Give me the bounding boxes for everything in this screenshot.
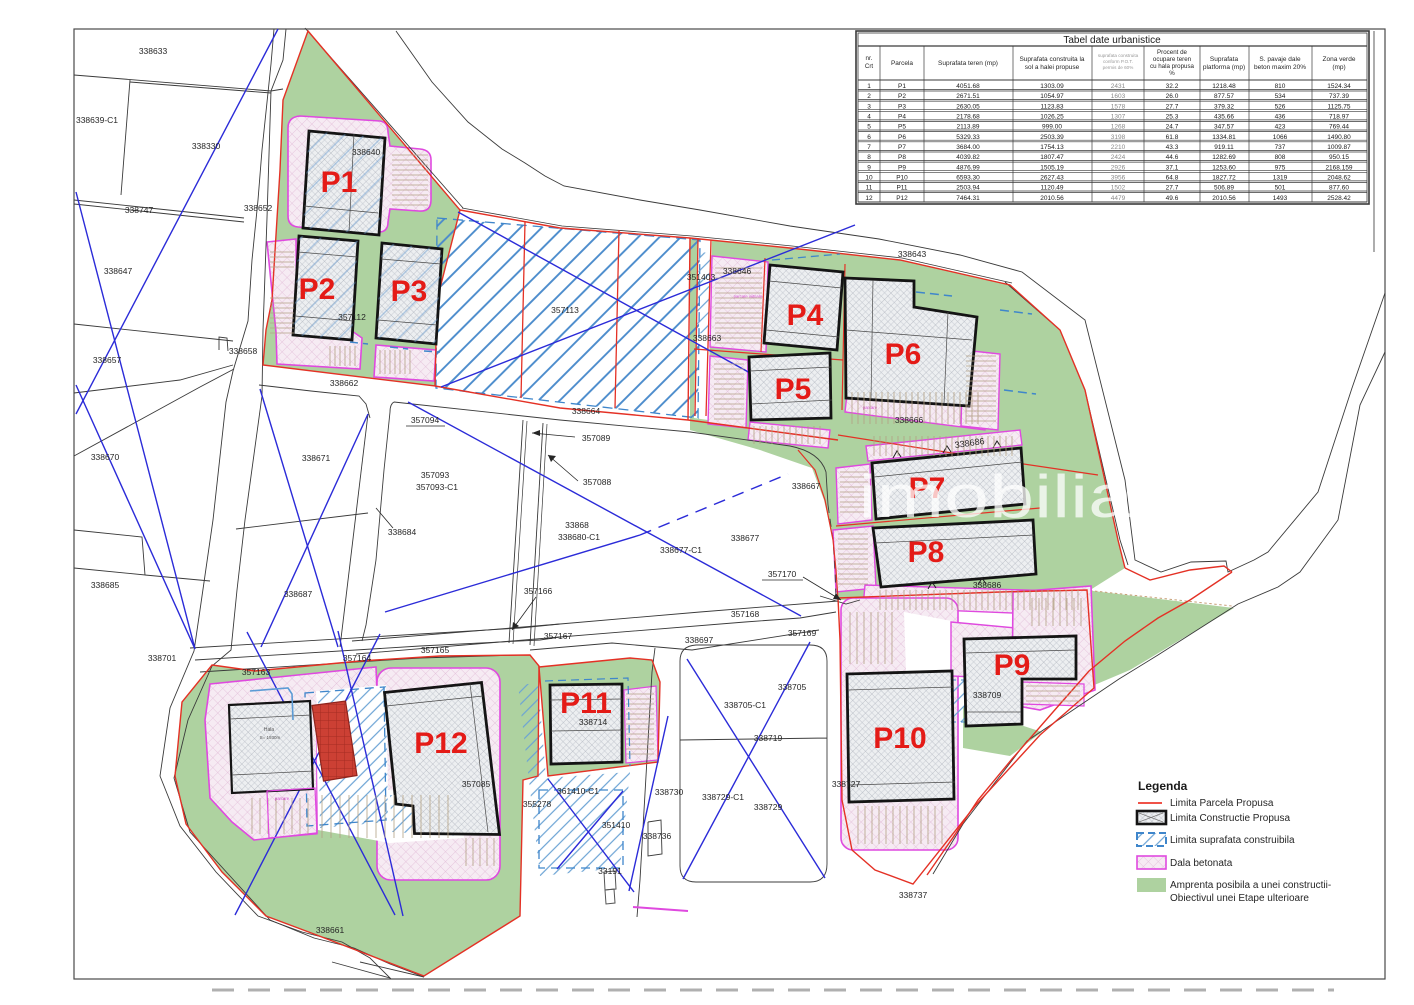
svg-text:338709: 338709 bbox=[973, 690, 1002, 700]
svg-text:338671: 338671 bbox=[302, 453, 331, 463]
svg-text:423: 423 bbox=[1275, 124, 1286, 131]
svg-text:P7: P7 bbox=[898, 144, 906, 151]
svg-text:338686: 338686 bbox=[973, 580, 1002, 590]
svg-text:43.3: 43.3 bbox=[1166, 144, 1179, 151]
svg-text:Procent de: Procent de bbox=[1157, 49, 1187, 56]
svg-text:338633: 338633 bbox=[139, 46, 168, 56]
svg-text:877.60: 877.60 bbox=[1329, 185, 1349, 192]
svg-text:4: 4 bbox=[867, 113, 871, 120]
svg-text:338662: 338662 bbox=[330, 378, 359, 388]
svg-text:P4: P4 bbox=[787, 299, 824, 332]
svg-text:ocupare teren: ocupare teren bbox=[1153, 56, 1192, 63]
svg-text:338730: 338730 bbox=[655, 787, 684, 797]
svg-text:1603: 1603 bbox=[1111, 93, 1126, 100]
svg-text:Limita Constructie Propusa: Limita Constructie Propusa bbox=[1170, 813, 1290, 824]
svg-text:P5: P5 bbox=[898, 124, 906, 131]
svg-text:347.57: 347.57 bbox=[1214, 124, 1234, 131]
svg-text:338647: 338647 bbox=[104, 266, 133, 276]
svg-text:Zona verde: Zona verde bbox=[1323, 56, 1356, 63]
svg-text:4051.68: 4051.68 bbox=[956, 83, 980, 90]
svg-text:338729-C1: 338729-C1 bbox=[702, 792, 744, 802]
svg-text:1578: 1578 bbox=[1111, 103, 1126, 110]
svg-text:1334.81: 1334.81 bbox=[1212, 134, 1236, 141]
svg-text:2113.89: 2113.89 bbox=[956, 124, 979, 131]
svg-text:nr.: nr. bbox=[866, 55, 873, 62]
svg-text:27.7: 27.7 bbox=[1166, 185, 1179, 192]
svg-text:357168: 357168 bbox=[731, 609, 760, 619]
svg-text:P12: P12 bbox=[414, 727, 467, 760]
svg-text:2010.56: 2010.56 bbox=[1040, 195, 1064, 202]
svg-text:44.6: 44.6 bbox=[1166, 154, 1179, 161]
svg-text:61.8: 61.8 bbox=[1166, 134, 1179, 141]
svg-text:338661: 338661 bbox=[316, 925, 345, 935]
svg-text:Limita suprafata construibila: Limita suprafata construibila bbox=[1170, 835, 1295, 846]
svg-text:338677-C1: 338677-C1 bbox=[660, 545, 702, 555]
svg-text:P2: P2 bbox=[898, 93, 906, 100]
svg-text:999.00: 999.00 bbox=[1042, 124, 1062, 131]
svg-text:2528.42: 2528.42 bbox=[1327, 195, 1351, 202]
svg-text:P10: P10 bbox=[896, 174, 908, 181]
svg-text:26.0: 26.0 bbox=[1166, 93, 1179, 100]
svg-text:beton maxim 20%: beton maxim 20% bbox=[1254, 64, 1306, 71]
svg-text:379.32: 379.32 bbox=[1214, 103, 1234, 110]
svg-text:2503.39: 2503.39 bbox=[1040, 134, 1064, 141]
svg-text:3684.00: 3684.00 bbox=[956, 144, 980, 151]
svg-text:cu hala propusa: cu hala propusa bbox=[1150, 63, 1195, 70]
svg-text:436: 436 bbox=[1275, 113, 1286, 120]
svg-text:718.97: 718.97 bbox=[1329, 113, 1349, 120]
svg-text:1493: 1493 bbox=[1273, 195, 1288, 202]
svg-text:808: 808 bbox=[1275, 154, 1286, 161]
svg-text:Hala: Hala bbox=[264, 727, 275, 733]
svg-text:suprafata construita: suprafata construita bbox=[1098, 53, 1139, 58]
svg-text:1827.72: 1827.72 bbox=[1212, 174, 1236, 181]
svg-text:357163: 357163 bbox=[242, 667, 271, 677]
svg-text:1268: 1268 bbox=[1111, 124, 1126, 131]
svg-text:2178.68: 2178.68 bbox=[956, 113, 980, 120]
svg-text:2431: 2431 bbox=[1111, 83, 1126, 90]
svg-text:P9: P9 bbox=[898, 164, 906, 171]
svg-text:338643: 338643 bbox=[898, 249, 927, 259]
svg-text:534: 534 bbox=[1275, 93, 1286, 100]
svg-text:1253.60: 1253.60 bbox=[1212, 164, 1236, 171]
svg-text:338663: 338663 bbox=[693, 333, 722, 343]
svg-text:357089: 357089 bbox=[582, 433, 611, 443]
svg-text:975: 975 bbox=[1275, 164, 1286, 171]
svg-text:Amprenta posibila a unei const: Amprenta posibila a unei constructii- bbox=[1170, 880, 1331, 891]
svg-text:5: 5 bbox=[867, 124, 871, 131]
svg-text:338685: 338685 bbox=[91, 580, 120, 590]
svg-text:P6: P6 bbox=[885, 338, 922, 371]
svg-text:1807.47: 1807.47 bbox=[1040, 154, 1064, 161]
svg-text:64.8: 64.8 bbox=[1166, 174, 1179, 181]
svg-text:338747: 338747 bbox=[125, 205, 154, 215]
svg-text:Dala betonata: Dala betonata bbox=[1170, 858, 1233, 869]
svg-text:435.66: 435.66 bbox=[1214, 113, 1234, 120]
svg-text:P1: P1 bbox=[898, 83, 906, 90]
svg-text:Limita Parcela Propusa: Limita Parcela Propusa bbox=[1170, 798, 1274, 809]
svg-text:P1: P1 bbox=[321, 166, 358, 199]
svg-text:1: 1 bbox=[867, 83, 871, 90]
svg-text:338719: 338719 bbox=[754, 733, 783, 743]
svg-text:2210: 2210 bbox=[1111, 144, 1126, 151]
svg-text:4479: 4479 bbox=[1111, 195, 1126, 202]
svg-text:737: 737 bbox=[1275, 144, 1286, 151]
svg-text:338684: 338684 bbox=[388, 527, 417, 537]
svg-text:357094: 357094 bbox=[411, 415, 440, 425]
svg-text:1319: 1319 bbox=[1273, 174, 1288, 181]
svg-text:338701: 338701 bbox=[148, 653, 177, 663]
svg-text:5329.33: 5329.33 bbox=[956, 134, 980, 141]
svg-text:338670: 338670 bbox=[91, 452, 120, 462]
svg-text:877.57: 877.57 bbox=[1214, 93, 1234, 100]
svg-text:338736: 338736 bbox=[643, 831, 672, 841]
svg-text:357169: 357169 bbox=[788, 628, 817, 638]
svg-text:1490.80: 1490.80 bbox=[1327, 134, 1351, 141]
svg-text:imobilia: imobilia bbox=[859, 463, 1134, 530]
svg-text:9: 9 bbox=[867, 164, 871, 171]
svg-text:permis de 60%: permis de 60% bbox=[1103, 65, 1134, 70]
svg-text:Suprafata teren (mp): Suprafata teren (mp) bbox=[938, 60, 998, 67]
svg-text:8: 8 bbox=[867, 154, 871, 161]
svg-text:7: 7 bbox=[867, 144, 871, 151]
svg-text:338666: 338666 bbox=[895, 415, 924, 425]
svg-text:1218.48: 1218.48 bbox=[1212, 83, 1236, 90]
svg-text:338727: 338727 bbox=[832, 779, 861, 789]
svg-text:338330: 338330 bbox=[192, 141, 221, 151]
svg-text:1026.25: 1026.25 bbox=[1040, 113, 1064, 120]
svg-text:12: 12 bbox=[865, 195, 873, 202]
svg-text:sol a halei propuse: sol a halei propuse bbox=[1025, 64, 1080, 71]
svg-text:1282.69: 1282.69 bbox=[1212, 154, 1236, 161]
svg-text:P5: P5 bbox=[775, 373, 812, 406]
svg-text:P12: P12 bbox=[896, 195, 908, 202]
svg-text:338677: 338677 bbox=[731, 533, 760, 543]
svg-text:2168.159: 2168.159 bbox=[1325, 164, 1352, 171]
svg-text:P9: P9 bbox=[994, 649, 1031, 682]
svg-text:%: % bbox=[1169, 70, 1175, 77]
svg-text:P2: P2 bbox=[299, 273, 336, 306]
svg-text:Obiectivul unei Etape ulterioa: Obiectivul unei Etape ulterioare bbox=[1170, 893, 1309, 904]
svg-text:P4: P4 bbox=[898, 113, 906, 120]
svg-text:33868: 33868 bbox=[565, 520, 589, 530]
svg-text:506.89: 506.89 bbox=[1214, 185, 1234, 192]
svg-text:950.15: 950.15 bbox=[1329, 154, 1349, 161]
svg-text:1754.13: 1754.13 bbox=[1040, 144, 1064, 151]
svg-text:2627.43: 2627.43 bbox=[1040, 174, 1064, 181]
svg-text:32.2: 32.2 bbox=[1166, 83, 1179, 90]
svg-text:3: 3 bbox=[867, 103, 871, 110]
svg-text:919.11: 919.11 bbox=[1214, 144, 1234, 151]
svg-text:2503.94: 2503.94 bbox=[956, 185, 980, 192]
svg-text:P8: P8 bbox=[898, 154, 906, 161]
svg-text:24.7: 24.7 bbox=[1166, 124, 1179, 131]
svg-text:27.7: 27.7 bbox=[1166, 103, 1179, 110]
svg-text:769.44: 769.44 bbox=[1329, 124, 1349, 131]
svg-text:2630.05: 2630.05 bbox=[956, 103, 980, 110]
svg-text:10: 10 bbox=[865, 174, 873, 181]
svg-text:338705-C1: 338705-C1 bbox=[724, 700, 766, 710]
svg-text:2: 2 bbox=[867, 93, 871, 100]
svg-text:351403: 351403 bbox=[687, 272, 716, 282]
svg-text:1009.87: 1009.87 bbox=[1327, 144, 1351, 151]
svg-text:338680-C1: 338680-C1 bbox=[558, 532, 600, 542]
svg-text:3198: 3198 bbox=[1111, 134, 1126, 141]
svg-text:355278: 355278 bbox=[523, 799, 552, 809]
svg-text:1123.83: 1123.83 bbox=[1040, 103, 1063, 110]
svg-text:361410-C1: 361410-C1 bbox=[557, 786, 599, 796]
svg-text:810: 810 bbox=[1275, 83, 1286, 90]
svg-text:2926: 2926 bbox=[1111, 164, 1126, 171]
svg-text:11: 11 bbox=[866, 185, 873, 192]
svg-text:Legenda: Legenda bbox=[1138, 779, 1188, 793]
svg-text:338652: 338652 bbox=[244, 203, 273, 213]
svg-text:Suprafata: Suprafata bbox=[1210, 56, 1239, 63]
svg-text:1066: 1066 bbox=[1273, 134, 1288, 141]
svg-text:1125.75: 1125.75 bbox=[1327, 103, 1350, 110]
svg-text:526: 526 bbox=[1275, 103, 1286, 110]
svg-text:conform P.O.T.: conform P.O.T. bbox=[1103, 59, 1133, 64]
svg-text:37.1: 37.1 bbox=[1166, 164, 1179, 171]
svg-text:338657: 338657 bbox=[93, 355, 122, 365]
svg-text:737.39: 737.39 bbox=[1329, 93, 1349, 100]
svg-text:501: 501 bbox=[1275, 185, 1286, 192]
svg-text:4876.99: 4876.99 bbox=[956, 164, 980, 171]
svg-text:2424: 2424 bbox=[1111, 154, 1126, 161]
svg-text:Suprafata construita la: Suprafata construita la bbox=[1019, 56, 1084, 63]
svg-text:338697: 338697 bbox=[685, 635, 714, 645]
svg-text:6593.30: 6593.30 bbox=[956, 174, 980, 181]
svg-text:357165: 357165 bbox=[421, 645, 450, 655]
svg-text:338667: 338667 bbox=[792, 481, 821, 491]
svg-text:357093: 357093 bbox=[421, 470, 450, 480]
svg-text:3956: 3956 bbox=[1111, 174, 1126, 181]
svg-text:1307: 1307 bbox=[1111, 113, 1126, 120]
svg-text:P10: P10 bbox=[873, 722, 926, 755]
svg-text:1502: 1502 bbox=[1111, 185, 1126, 192]
svg-text:P11: P11 bbox=[560, 687, 612, 720]
svg-text:338646: 338646 bbox=[723, 266, 752, 276]
svg-text:2671.51: 2671.51 bbox=[956, 93, 980, 100]
svg-text:P3: P3 bbox=[391, 275, 428, 308]
svg-text:33191: 33191 bbox=[598, 866, 622, 876]
svg-text:338639-C1: 338639-C1 bbox=[76, 115, 118, 125]
svg-text:platforma (mp): platforma (mp) bbox=[1203, 64, 1245, 71]
svg-text:338640: 338640 bbox=[352, 147, 381, 157]
svg-text:357113: 357113 bbox=[551, 305, 579, 315]
svg-text:1120.49: 1120.49 bbox=[1040, 185, 1063, 192]
svg-text:(mp): (mp) bbox=[1332, 64, 1345, 71]
svg-text:2048.62: 2048.62 bbox=[1327, 174, 1351, 181]
svg-text:1524.34: 1524.34 bbox=[1327, 83, 1351, 90]
svg-text:1054.97: 1054.97 bbox=[1040, 93, 1064, 100]
svg-text:S= 1930m: S= 1930m bbox=[260, 735, 281, 740]
svg-text:Parcela: Parcela bbox=[891, 60, 913, 67]
svg-text:P6: P6 bbox=[898, 134, 906, 141]
svg-text:S. pavaje dale: S. pavaje dale bbox=[1259, 56, 1301, 63]
svg-text:338664: 338664 bbox=[572, 406, 601, 416]
svg-text:2010.56: 2010.56 bbox=[1212, 195, 1236, 202]
svg-text:357170: 357170 bbox=[768, 569, 797, 579]
svg-text:351410: 351410 bbox=[602, 820, 631, 830]
svg-text:25.3: 25.3 bbox=[1166, 113, 1179, 120]
svg-text:4039.82: 4039.82 bbox=[956, 154, 980, 161]
svg-text:357164: 357164 bbox=[343, 653, 372, 663]
svg-text:338729: 338729 bbox=[754, 802, 783, 812]
svg-text:357112: 357112 bbox=[338, 312, 366, 322]
svg-text:357085: 357085 bbox=[462, 779, 491, 789]
svg-text:7464.31: 7464.31 bbox=[956, 195, 980, 202]
svg-text:P8: P8 bbox=[908, 536, 945, 569]
svg-text:338658: 338658 bbox=[229, 346, 258, 356]
svg-text:1505.19: 1505.19 bbox=[1040, 164, 1064, 171]
svg-text:P3: P3 bbox=[898, 103, 906, 110]
svg-text:Tabel date urbanistice: Tabel date urbanistice bbox=[1063, 35, 1161, 46]
svg-text:1303.09: 1303.09 bbox=[1040, 83, 1064, 90]
svg-text:357093-C1: 357093-C1 bbox=[416, 482, 458, 492]
svg-text:parcare: parcare bbox=[275, 796, 290, 801]
svg-text:P11: P11 bbox=[896, 185, 907, 192]
svg-text:338705: 338705 bbox=[778, 682, 807, 692]
svg-text:338737: 338737 bbox=[899, 890, 928, 900]
svg-text:6: 6 bbox=[867, 134, 871, 141]
svg-text:357088: 357088 bbox=[583, 477, 612, 487]
svg-text:49.6: 49.6 bbox=[1166, 195, 1179, 202]
svg-text:338687: 338687 bbox=[284, 589, 313, 599]
svg-text:357166: 357166 bbox=[524, 586, 553, 596]
svg-text:357167: 357167 bbox=[544, 631, 573, 641]
svg-text:Crt: Crt bbox=[865, 63, 874, 70]
